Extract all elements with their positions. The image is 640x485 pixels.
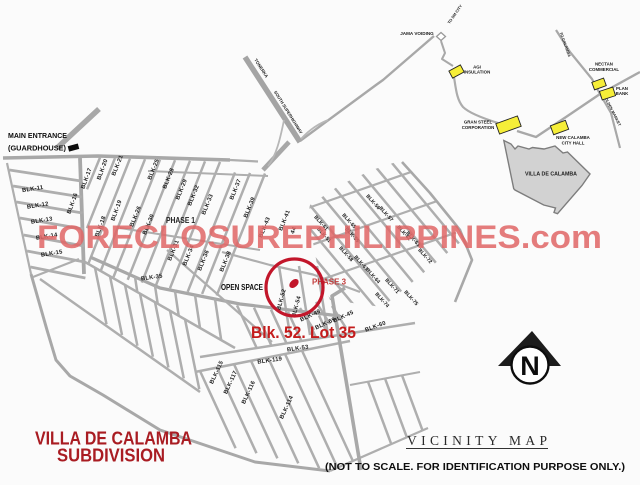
svg-text:Blk. 52. Lot 35: Blk. 52. Lot 35 [251, 324, 356, 342]
svg-text:CITY HALL: CITY HALL [562, 141, 585, 146]
svg-text:JAMA VOIDING: JAMA VOIDING [400, 31, 434, 36]
svg-text:CORPORATION: CORPORATION [462, 125, 495, 130]
svg-text:COMMERCIAL: COMMERCIAL [589, 67, 620, 72]
svg-text:PHASE 3: PHASE 3 [312, 278, 347, 287]
svg-text:SUBDIVISION: SUBDIVISION [57, 446, 165, 466]
svg-text:NECTAN: NECTAN [595, 62, 613, 67]
svg-text:N: N [520, 351, 540, 381]
svg-text:GRAN STEEL: GRAN STEEL [464, 120, 493, 125]
svg-text:INSULATION: INSULATION [464, 70, 491, 75]
svg-text:VILLA DE CALAMBA: VILLA DE CALAMBA [525, 172, 577, 178]
svg-text:(NOT TO SCALE. FOR IDENTIFICAT: (NOT TO SCALE. FOR IDENTIFICATION PURPOS… [325, 462, 625, 473]
svg-text:OPEN SPACE: OPEN SPACE [221, 283, 263, 292]
svg-text:MAIN ENTRANCE: MAIN ENTRANCE [8, 131, 67, 140]
svg-text:NEW CALAMBA: NEW CALAMBA [556, 135, 590, 140]
svg-text:BANK: BANK [616, 91, 630, 96]
svg-text:FORECLOSUREPHILIPPINES.com: FORECLOSUREPHILIPPINES.com [37, 219, 602, 255]
svg-text:(GUARDHOUSE): (GUARDHOUSE) [8, 144, 66, 153]
